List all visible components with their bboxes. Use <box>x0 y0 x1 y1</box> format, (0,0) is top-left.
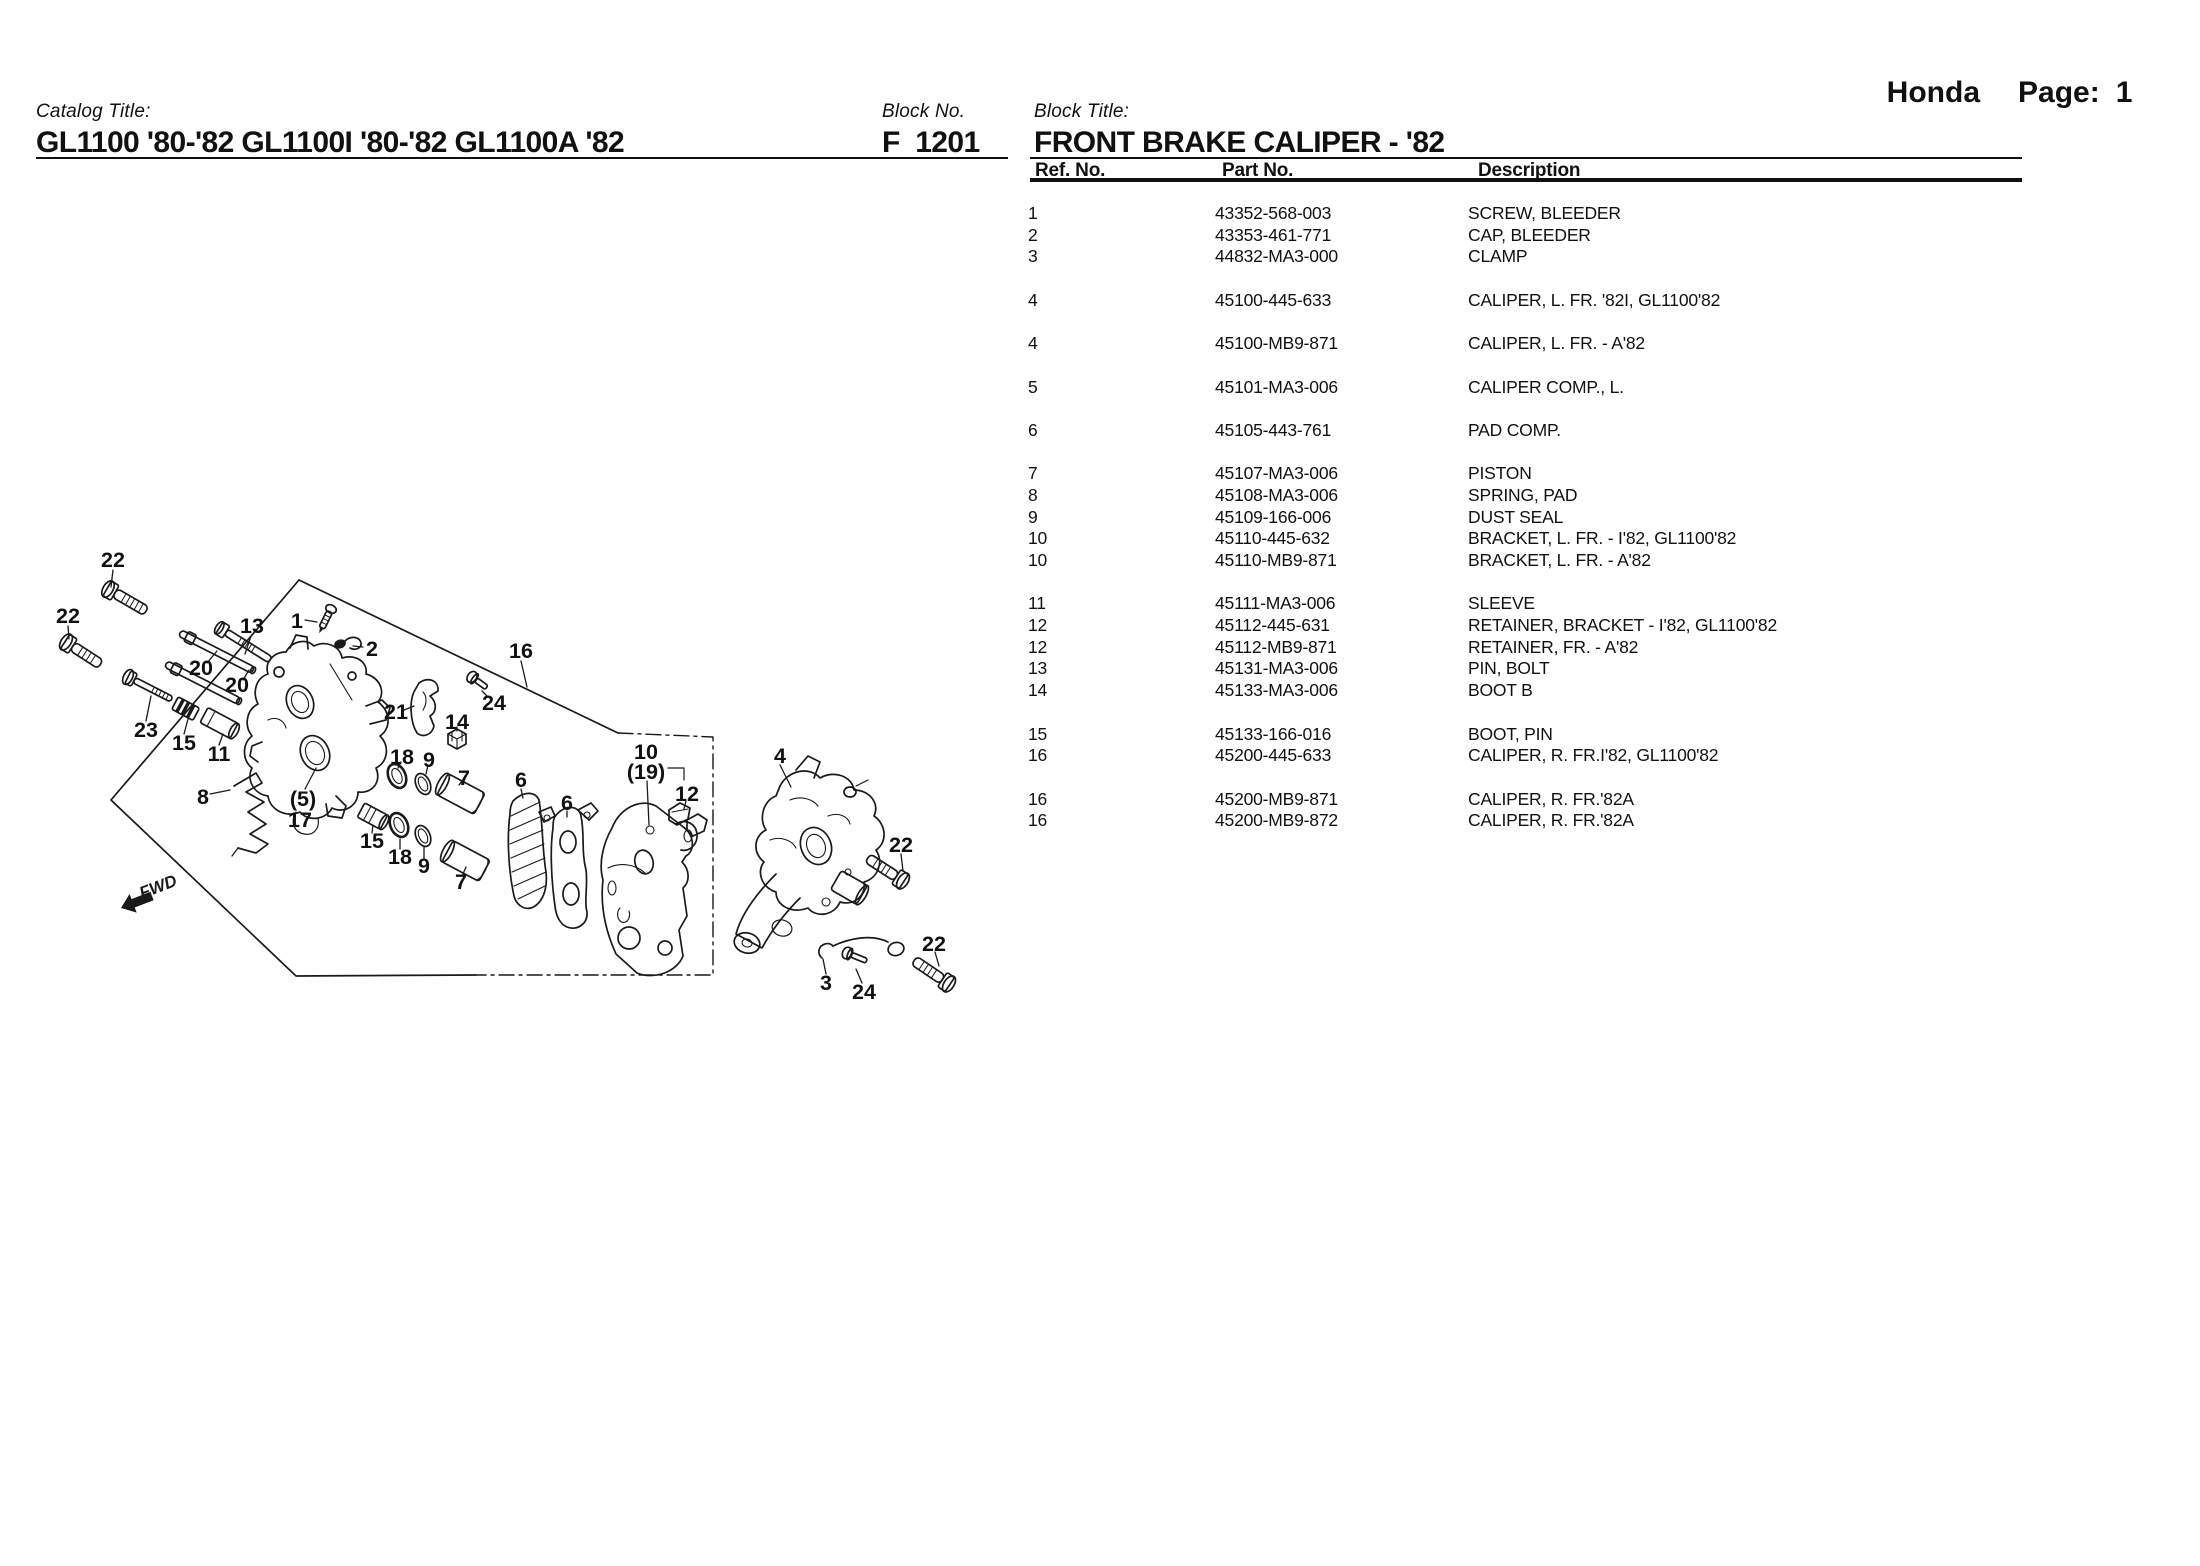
ref-no-cell: 10 <box>1028 550 1215 572</box>
description-cell: RETAINER, FR. - A'82 <box>1468 637 2078 659</box>
brand-label: Honda <box>1887 76 1980 109</box>
ref-no-cell: 16 <box>1028 745 1215 767</box>
description-cell: RETAINER, BRACKET - I'82, GL1100'82 <box>1468 615 2078 637</box>
table-row: 2 43353-461-771 CAP, BLEEDER <box>1028 225 2078 247</box>
ref-no-cell: 14 <box>1028 680 1215 702</box>
part-no-cell: 43353-461-771 <box>1215 225 1468 247</box>
table-row: 15 45133-166-016 BOOT, PIN <box>1028 724 2078 746</box>
part-label-9: 9 <box>423 748 435 772</box>
ref-no-cell: 5 <box>1028 377 1215 399</box>
ref-no-cell: 9 <box>1028 507 1215 529</box>
bushing-15b <box>357 803 391 831</box>
label-elbow-19-12 <box>668 768 684 780</box>
part-no-cell: 45108-MA3-006 <box>1215 485 1468 507</box>
table-row: 10 45110-MB9-871 BRACKET, L. FR. - A'82 <box>1028 550 2078 572</box>
part-label-7: 7 <box>455 870 467 894</box>
part-no-cell: 43352-568-003 <box>1215 203 1468 225</box>
bleeder-cap-2 <box>333 637 361 650</box>
label-leader-line <box>521 661 527 687</box>
part-label-9: 9 <box>418 854 430 878</box>
ref-no-cell: 2 <box>1028 225 1215 247</box>
description-cell: CALIPER, R. FR.I'82, GL1100'82 <box>1468 745 2078 767</box>
ref-no-cell: 12 <box>1028 637 1215 659</box>
table-row: 12 45112-MB9-871 RETAINER, FR. - A'82 <box>1028 637 2078 659</box>
screw-24-lower <box>841 946 869 967</box>
ref-no-cell: 4 <box>1028 290 1215 312</box>
description-cell: BOOT, PIN <box>1468 724 2078 746</box>
part-label-6: 6 <box>515 768 527 792</box>
part-label-13: 13 <box>240 614 264 638</box>
table-row: 13 45131-MA3-006 PIN, BOLT <box>1028 658 2078 680</box>
part-no-cell: 45107-MA3-006 <box>1215 463 1468 485</box>
page-label: Page: <box>2018 76 2100 109</box>
description-cell: SLEEVE <box>1468 593 2078 615</box>
part-label-23: 23 <box>134 718 158 742</box>
ref-no-cell: 3 <box>1028 246 1215 268</box>
part-label-18: 18 <box>390 745 414 769</box>
part-no-cell: 44832-MA3-000 <box>1215 246 1468 268</box>
column-header-desc: Description <box>1478 160 1580 182</box>
part-label-15: 15 <box>172 731 196 755</box>
page-header: HondaPage:1 <box>1870 42 2132 110</box>
description-cell: PIN, BOLT <box>1468 658 2078 680</box>
catalog-page: { "colors": { "ink": "#1a1a1a" }, "heade… <box>0 0 2200 1566</box>
part-label-22: 22 <box>889 833 913 857</box>
table-row: 11 45111-MA3-006 SLEEVE <box>1028 593 2078 615</box>
ref-no-cell: 4 <box>1028 333 1215 355</box>
ref-no-cell: 13 <box>1028 658 1215 680</box>
part-no-cell: 45110-MB9-871 <box>1215 550 1468 572</box>
part-labels: 222213121620202315112124141897668(5)1715… <box>56 548 946 1004</box>
part-label-22: 22 <box>101 548 125 572</box>
retainer-21 <box>411 680 438 736</box>
part-no-cell: 45200-MB9-871 <box>1215 789 1468 811</box>
table-row: 12 45112-445-631 RETAINER, BRACKET - I'8… <box>1028 615 2078 637</box>
bracket-10 <box>601 803 697 975</box>
table-row: 14 45133-MA3-006 BOOT B <box>1028 680 2078 702</box>
ref-no-cell: 7 <box>1028 463 1215 485</box>
ref-no-cell: 10 <box>1028 528 1215 550</box>
ref-no-cell: 15 <box>1028 724 1215 746</box>
description-cell: BOOT B <box>1468 680 2078 702</box>
part-no-cell: 45100-445-633 <box>1215 290 1468 312</box>
part-no-cell: 45111-MA3-006 <box>1215 593 1468 615</box>
ref-no-cell: 12 <box>1028 615 1215 637</box>
label-leader-line <box>305 768 316 789</box>
header-rule-right <box>1030 157 2022 159</box>
table-row: 16 45200-MB9-871 CALIPER, R. FR.'82A <box>1028 789 2078 811</box>
block-title-label: Block Title: <box>1034 101 1129 123</box>
part-label-1: 1 <box>291 609 303 633</box>
table-row: 4 45100-MB9-871 CALIPER, L. FR. - A'82 <box>1028 333 2078 355</box>
part-label-20: 20 <box>189 656 213 680</box>
bleeder-screw-1 <box>314 603 337 636</box>
table-row: 5 45101-MA3-006 CALIPER COMP., L. <box>1028 377 2078 399</box>
brake-pad-6b <box>551 803 598 928</box>
description-cell: PISTON <box>1468 463 2078 485</box>
ref-no-cell: 8 <box>1028 485 1215 507</box>
bolt-23 <box>120 668 175 707</box>
part-label-19: (19) <box>627 760 665 784</box>
column-header-ref: Ref. No. <box>1035 160 1105 182</box>
part-label-15: 15 <box>360 829 384 853</box>
part-label-12: 12 <box>675 782 699 806</box>
brake-pad-6a <box>508 793 555 908</box>
part-no-cell: 45200-MB9-872 <box>1215 810 1468 832</box>
part-label-2: 2 <box>366 637 378 661</box>
fwd-label: FWD <box>137 871 180 903</box>
screw-24-upper <box>465 670 490 693</box>
seal-ring-9b <box>412 823 434 849</box>
table-row: 16 45200-445-633 CALIPER, R. FR.I'82, GL… <box>1028 745 2078 767</box>
label-leader-line <box>305 620 317 622</box>
bolt-22-bottom <box>909 953 958 994</box>
part-no-cell: 45101-MA3-006 <box>1215 377 1468 399</box>
part-no-cell: 45112-445-631 <box>1215 615 1468 637</box>
part-label-16: 16 <box>509 639 533 663</box>
pad-spring-8 <box>232 773 268 856</box>
part-label-22: 22 <box>56 604 80 628</box>
table-row: 10 45110-445-632 BRACKET, L. FR. - I'82,… <box>1028 528 2078 550</box>
part-no-cell: 45133-MA3-006 <box>1215 680 1468 702</box>
part-label-22: 22 <box>922 932 946 956</box>
table-row: 9 45109-166-006 DUST SEAL <box>1028 507 2078 529</box>
part-label-14: 14 <box>445 710 469 734</box>
part-label-6: 6 <box>561 791 573 815</box>
description-cell: CLAMP <box>1468 246 2078 268</box>
ref-no-cell: 1 <box>1028 203 1215 225</box>
ref-no-cell: 16 <box>1028 789 1215 811</box>
label-leader-line <box>210 790 230 794</box>
part-no-cell: 45112-MB9-871 <box>1215 637 1468 659</box>
table-row: 4 45100-445-633 CALIPER, L. FR. '82I, GL… <box>1028 290 2078 312</box>
description-cell: SPRING, PAD <box>1468 485 2078 507</box>
ref-no-cell: 16 <box>1028 810 1215 832</box>
part-label-17: 17 <box>288 808 312 832</box>
column-header-part: Part No. <box>1222 160 1293 182</box>
part-label-3: 3 <box>820 971 832 995</box>
bolt-22-left <box>57 632 105 672</box>
part-no-cell: 45109-166-006 <box>1215 507 1468 529</box>
ref-no-cell: 11 <box>1028 593 1215 615</box>
part-no-cell: 45110-445-632 <box>1215 528 1468 550</box>
part-label-4: 4 <box>774 744 786 768</box>
part-label-21: 21 <box>384 700 408 724</box>
part-no-cell: 45200-445-633 <box>1215 745 1468 767</box>
exploded-parts-diagram: FWD 222213121620202315112124141897668(5)… <box>0 0 1030 1030</box>
description-cell: CALIPER, R. FR.'82A <box>1468 789 2078 811</box>
table-row: 6 45105-443-761 PAD COMP. <box>1028 420 2078 442</box>
table-row: 3 44832-MA3-000 CLAMP <box>1028 246 2078 268</box>
table-row: 1 43352-568-003 SCREW, BLEEDER <box>1028 203 2078 225</box>
sleeve-11 <box>200 707 242 740</box>
description-cell: CALIPER, L. FR. - A'82 <box>1468 333 2078 355</box>
description-cell: SCREW, BLEEDER <box>1468 203 2078 225</box>
table-row: 16 45200-MB9-872 CALIPER, R. FR.'82A <box>1028 810 2078 832</box>
block-title: FRONT BRAKE CALIPER - '82 <box>1034 126 1445 160</box>
table-row: 8 45108-MA3-006 SPRING, PAD <box>1028 485 2078 507</box>
seal-ring-9a <box>412 771 434 797</box>
part-no-cell: 45133-166-016 <box>1215 724 1468 746</box>
part-label-8: 8 <box>197 785 209 809</box>
parts-table: 1 43352-568-003 SCREW, BLEEDER 2 43353-4… <box>1028 203 2078 832</box>
description-cell: BRACKET, L. FR. - I'82, GL1100'82 <box>1468 528 2078 550</box>
fwd-arrow-icon: FWD <box>121 871 180 912</box>
dust-seal-18b <box>386 810 412 840</box>
part-no-cell: 45131-MA3-006 <box>1215 658 1468 680</box>
table-row: 7 45107-MA3-006 PISTON <box>1028 463 2078 485</box>
ref-no-cell: 6 <box>1028 420 1215 442</box>
description-cell: PAD COMP. <box>1468 420 2078 442</box>
description-cell: CALIPER, L. FR. '82I, GL1100'82 <box>1468 290 2078 312</box>
description-cell: BRACKET, L. FR. - A'82 <box>1468 550 2078 572</box>
part-no-cell: 45105-443-761 <box>1215 420 1468 442</box>
part-no-cell: 45100-MB9-871 <box>1215 333 1468 355</box>
caliper-assembly-4 <box>732 756 884 956</box>
clamp-3 <box>819 938 906 958</box>
description-cell: CALIPER COMP., L. <box>1468 377 2078 399</box>
page-number: 1 <box>2116 76 2133 109</box>
part-label-24: 24 <box>482 691 506 715</box>
part-label-18: 18 <box>388 845 412 869</box>
part-label-7: 7 <box>458 766 470 790</box>
label-leader-line <box>111 570 113 587</box>
description-cell: CAP, BLEEDER <box>1468 225 2078 247</box>
part-label-20: 20 <box>225 673 249 697</box>
description-cell: CALIPER, R. FR.'82A <box>1468 810 2078 832</box>
description-cell: DUST SEAL <box>1468 507 2078 529</box>
bolt-22-top <box>99 579 150 619</box>
part-label-24: 24 <box>852 980 876 1004</box>
part-label-11: 11 <box>208 742 231 766</box>
